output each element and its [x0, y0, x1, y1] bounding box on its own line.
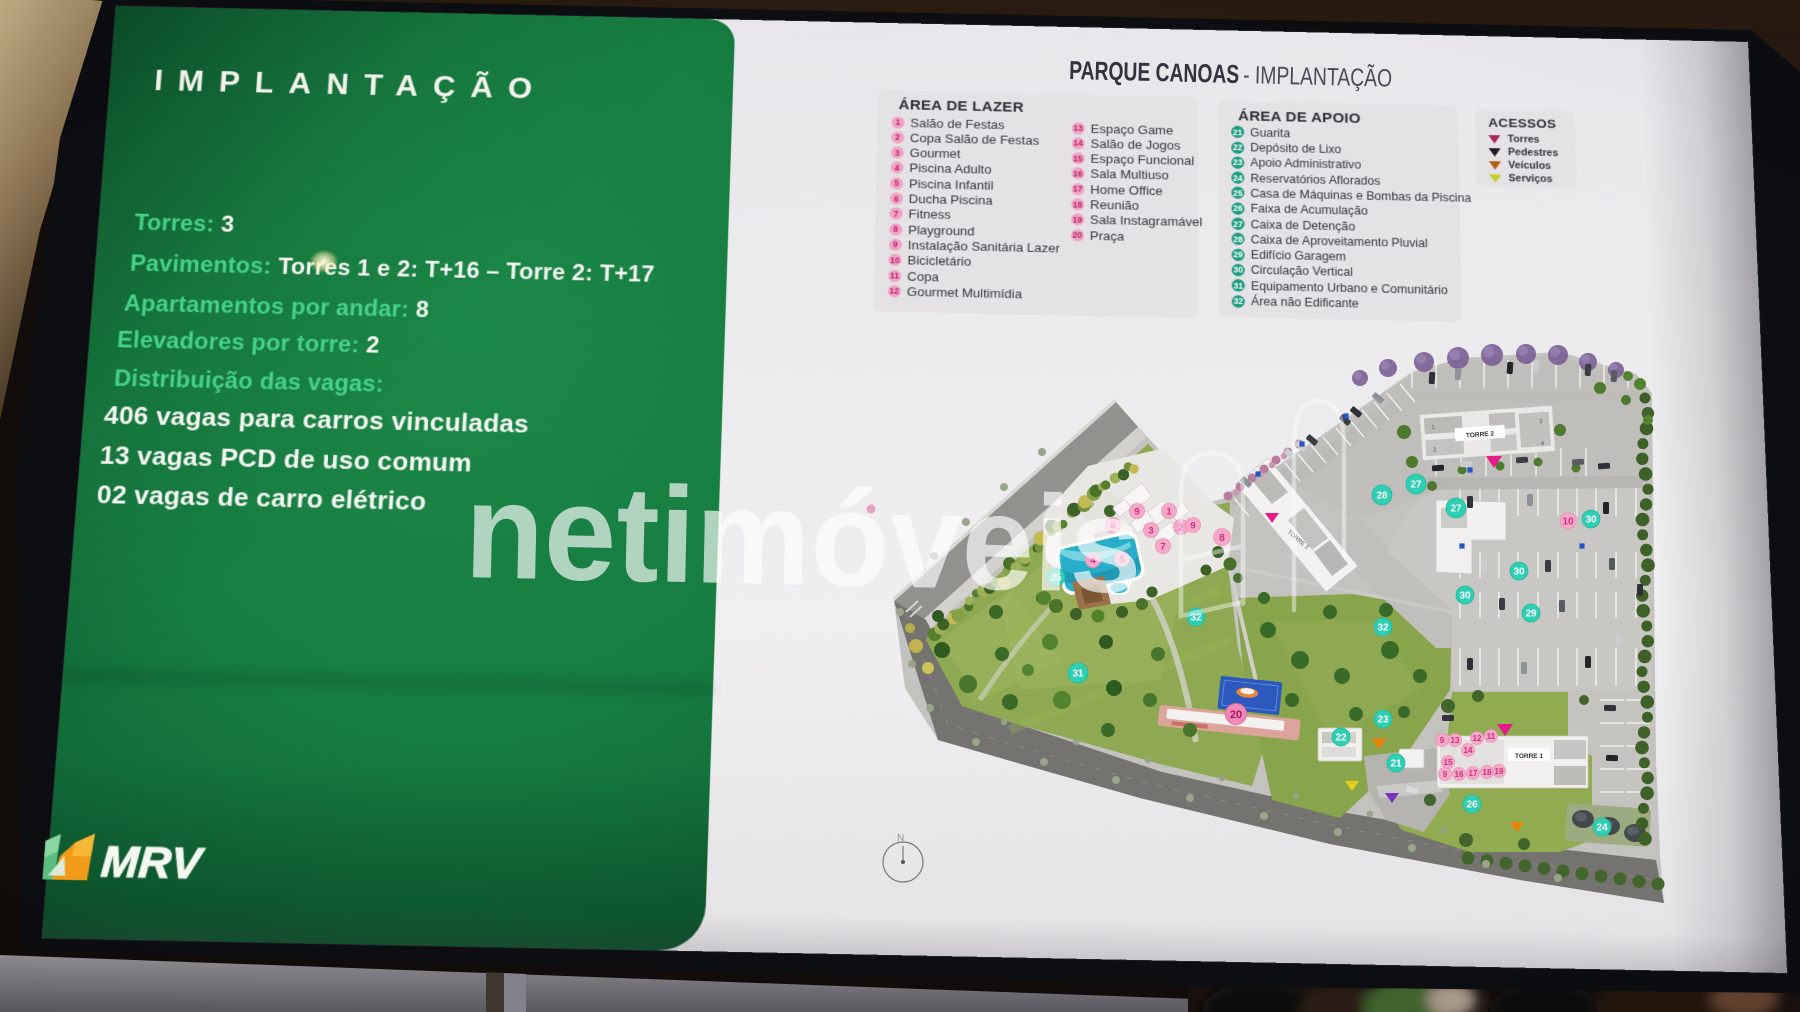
svg-text:14: 14: [1464, 746, 1473, 755]
svg-text:10: 10: [1562, 517, 1574, 528]
svg-text:28: 28: [1376, 491, 1388, 502]
svg-text:20: 20: [1230, 709, 1242, 721]
svg-text:7: 7: [1160, 541, 1165, 552]
svg-text:24: 24: [1596, 823, 1608, 834]
svg-text:29: 29: [1525, 609, 1537, 620]
svg-text:30: 30: [1459, 591, 1471, 602]
svg-text:1: 1: [1166, 506, 1172, 517]
svg-text:30: 30: [1585, 515, 1597, 526]
svg-text:3: 3: [1148, 525, 1153, 536]
svg-text:27: 27: [1410, 480, 1422, 491]
svg-text:17: 17: [1469, 769, 1478, 778]
svg-text:27: 27: [1450, 504, 1462, 515]
svg-text:22: 22: [1335, 733, 1347, 744]
svg-text:15: 15: [1444, 758, 1453, 767]
svg-text:21: 21: [1390, 759, 1402, 770]
svg-text:16: 16: [1455, 770, 1464, 779]
svg-text:- IMPLANTAÇÃO: - IMPLANTAÇÃO: [1243, 60, 1393, 93]
svg-text:30: 30: [1513, 567, 1525, 578]
svg-text:12: 12: [1473, 734, 1482, 743]
svg-text:PARQUE CANOAS: PARQUE CANOAS: [1069, 55, 1240, 89]
svg-text:26: 26: [1466, 800, 1478, 811]
svg-text:8: 8: [1219, 532, 1225, 544]
svg-text:11: 11: [1487, 732, 1496, 741]
svg-text:32: 32: [1377, 623, 1389, 634]
svg-text:9: 9: [1440, 736, 1445, 745]
svg-text:netimóveis: netimóveis: [463, 454, 1143, 621]
svg-text:23: 23: [1377, 715, 1389, 726]
svg-text:13: 13: [1451, 736, 1460, 745]
svg-text:9: 9: [1443, 770, 1448, 779]
svg-text:18: 18: [1483, 768, 1492, 777]
svg-text:19: 19: [1495, 767, 1504, 776]
svg-text:9: 9: [1190, 520, 1195, 531]
svg-text:31: 31: [1072, 669, 1084, 680]
svg-text:N: N: [897, 833, 904, 844]
svg-text:TORRE 1: TORRE 1: [1515, 753, 1543, 760]
